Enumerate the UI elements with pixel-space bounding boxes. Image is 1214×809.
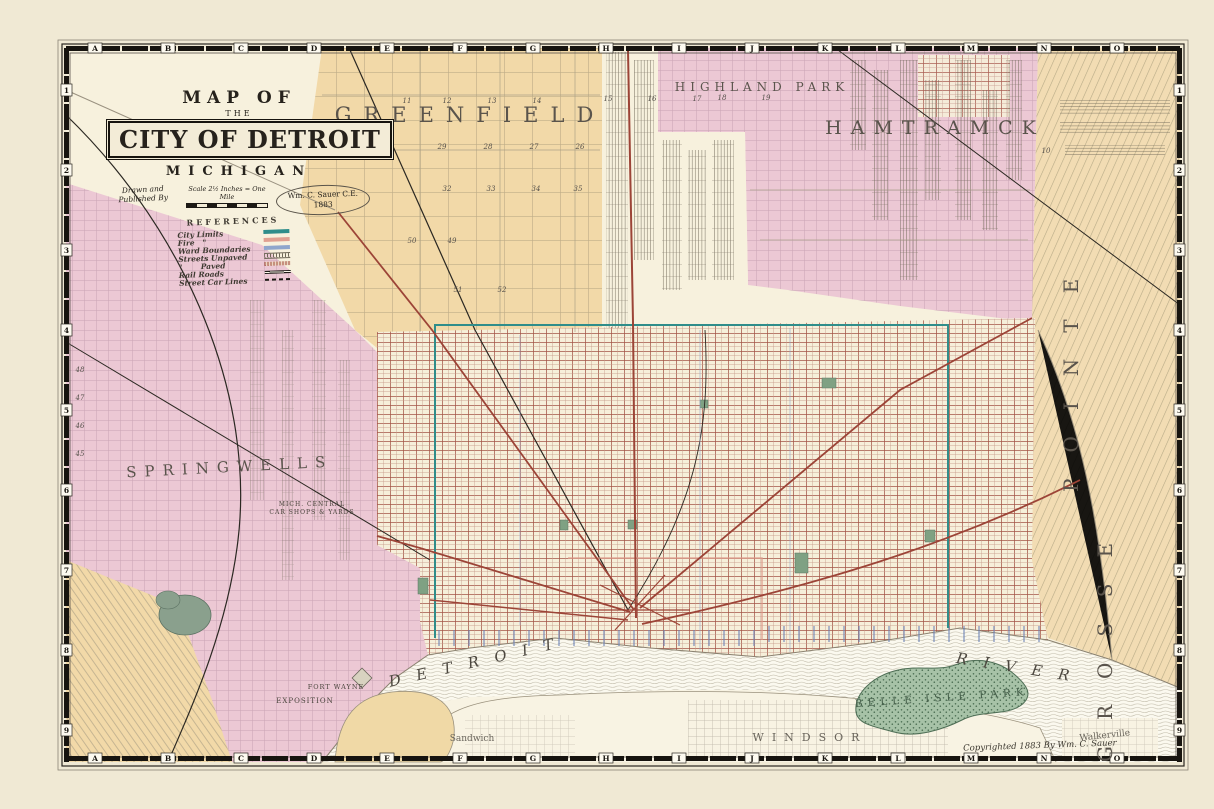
title-map-of: MAP OF xyxy=(108,88,370,108)
svg-text:F: F xyxy=(457,44,463,53)
svg-text:1: 1 xyxy=(1177,86,1182,95)
svg-text:26: 26 xyxy=(575,143,585,151)
svg-text:29: 29 xyxy=(437,143,447,151)
map-title-cartouche: MAP OF THE CITY OF DETROIT MICHIGAN Draw… xyxy=(108,88,370,215)
svg-text:K: K xyxy=(822,44,829,53)
svg-text:2: 2 xyxy=(64,166,69,175)
svg-text:G: G xyxy=(530,754,536,763)
svg-text:6: 6 xyxy=(64,486,69,495)
svg-text:32: 32 xyxy=(443,185,452,193)
svg-text:45: 45 xyxy=(75,450,85,458)
svg-text:G: G xyxy=(530,44,536,53)
label-hamtramck: HAMTRAMCK xyxy=(825,117,1045,139)
svg-text:9: 9 xyxy=(64,726,69,735)
scale-note: Scale 2½ Inches = One Mile xyxy=(181,185,273,208)
title-state: MICHIGAN xyxy=(108,164,370,179)
svg-text:4: 4 xyxy=(64,326,69,335)
svg-text:A: A xyxy=(91,44,98,53)
svg-text:46: 46 xyxy=(75,422,85,430)
svg-text:J: J xyxy=(749,754,754,763)
svg-text:E: E xyxy=(384,44,390,53)
svg-text:52: 52 xyxy=(498,286,507,294)
svg-text:2: 2 xyxy=(1177,166,1182,175)
svg-text:N: N xyxy=(1041,754,1048,763)
swatch-rail-roads xyxy=(265,270,291,274)
svg-text:H: H xyxy=(602,754,609,763)
svg-text:H: H xyxy=(602,44,609,53)
drawn-published-note: Drawn andPublished By xyxy=(108,183,179,205)
svg-text:L: L xyxy=(895,754,901,763)
label-car-shops-2: CAR SHOPS & YARDS xyxy=(269,509,354,516)
svg-text:4: 4 xyxy=(1177,326,1182,335)
grid-letters-bottom: A B C D E F G H I J K L M N O xyxy=(88,753,1124,763)
svg-text:8: 8 xyxy=(1177,646,1182,655)
label-highland-park: HIGHLAND PARK xyxy=(675,80,849,94)
svg-text:16: 16 xyxy=(648,95,657,103)
svg-text:I: I xyxy=(677,44,681,53)
svg-text:50: 50 xyxy=(408,237,417,245)
svg-text:5: 5 xyxy=(1177,406,1182,415)
grid-letters-top: A B C D E F G H I J K L M N O xyxy=(88,43,1124,53)
svg-text:34: 34 xyxy=(532,185,541,193)
svg-text:I: I xyxy=(677,754,681,763)
svg-text:51: 51 xyxy=(454,286,463,294)
svg-text:M: M xyxy=(967,754,975,763)
svg-text:E: E xyxy=(384,754,390,763)
svg-text:C: C xyxy=(238,44,244,53)
svg-text:18: 18 xyxy=(718,94,727,102)
svg-text:1: 1 xyxy=(64,86,69,95)
scale-bar xyxy=(186,203,268,208)
svg-text:J: J xyxy=(749,44,754,53)
svg-text:O: O xyxy=(1114,44,1121,53)
svg-text:7: 7 xyxy=(1177,566,1182,575)
label-exposition: EXPOSITION xyxy=(276,697,333,705)
svg-text:48: 48 xyxy=(75,366,85,374)
svg-text:19: 19 xyxy=(762,94,771,102)
svg-text:33: 33 xyxy=(487,185,496,193)
swatch-streets-paved xyxy=(264,261,290,265)
svg-text:B: B xyxy=(165,754,171,763)
svg-text:C: C xyxy=(238,754,244,763)
swatch-street-car-lines xyxy=(265,278,291,281)
svg-text:D: D xyxy=(311,754,318,763)
svg-text:15: 15 xyxy=(604,95,613,103)
swatch-fire-limits xyxy=(264,237,290,241)
svg-text:6: 6 xyxy=(1177,486,1182,495)
svg-text:F: F xyxy=(457,754,463,763)
label-car-shops-1: MICH. CENTRAL xyxy=(279,501,345,508)
references-legend: REFERENCES City Limits Fire " Ward Bound… xyxy=(177,214,291,287)
svg-text:K: K xyxy=(822,754,829,763)
svg-text:L: L xyxy=(895,44,901,53)
swatch-ward-boundaries xyxy=(264,245,290,249)
author-cartouche: Wm. C. Sauer C.E.1883 xyxy=(276,183,371,217)
svg-text:28: 28 xyxy=(483,143,493,151)
svg-text:47: 47 xyxy=(75,394,85,402)
svg-text:B: B xyxy=(165,44,171,53)
svg-text:N: N xyxy=(1041,44,1048,53)
title-banner: CITY OF DETROIT xyxy=(108,121,392,158)
svg-text:49: 49 xyxy=(447,237,457,245)
svg-text:3: 3 xyxy=(64,246,69,255)
swatch-city-limits xyxy=(263,229,289,233)
svg-text:D: D xyxy=(311,44,318,53)
label-grosse: GROSSE xyxy=(1093,517,1117,762)
svg-text:27: 27 xyxy=(529,143,539,151)
label-sandwich: Sandwich xyxy=(450,734,495,744)
svg-text:M: M xyxy=(967,44,975,53)
svg-text:7: 7 xyxy=(64,566,69,575)
svg-text:17: 17 xyxy=(693,95,702,103)
svg-text:8: 8 xyxy=(64,646,69,655)
svg-text:10: 10 xyxy=(1042,147,1051,155)
svg-text:3: 3 xyxy=(1177,246,1182,255)
svg-text:A: A xyxy=(91,754,98,763)
map-page: A B C D E F G H I J K L M N O A B C D E … xyxy=(0,0,1214,809)
svg-text:9: 9 xyxy=(1177,726,1182,735)
title-the: THE xyxy=(108,109,370,118)
label-pointe: POINTE xyxy=(1059,253,1083,492)
svg-text:5: 5 xyxy=(64,406,69,415)
svg-text:35: 35 xyxy=(574,185,583,193)
label-fort-wayne: FORT WAYNE xyxy=(308,683,365,691)
swatch-streets-unpaved xyxy=(264,252,290,258)
label-windsor: WINDSOR xyxy=(753,731,868,744)
